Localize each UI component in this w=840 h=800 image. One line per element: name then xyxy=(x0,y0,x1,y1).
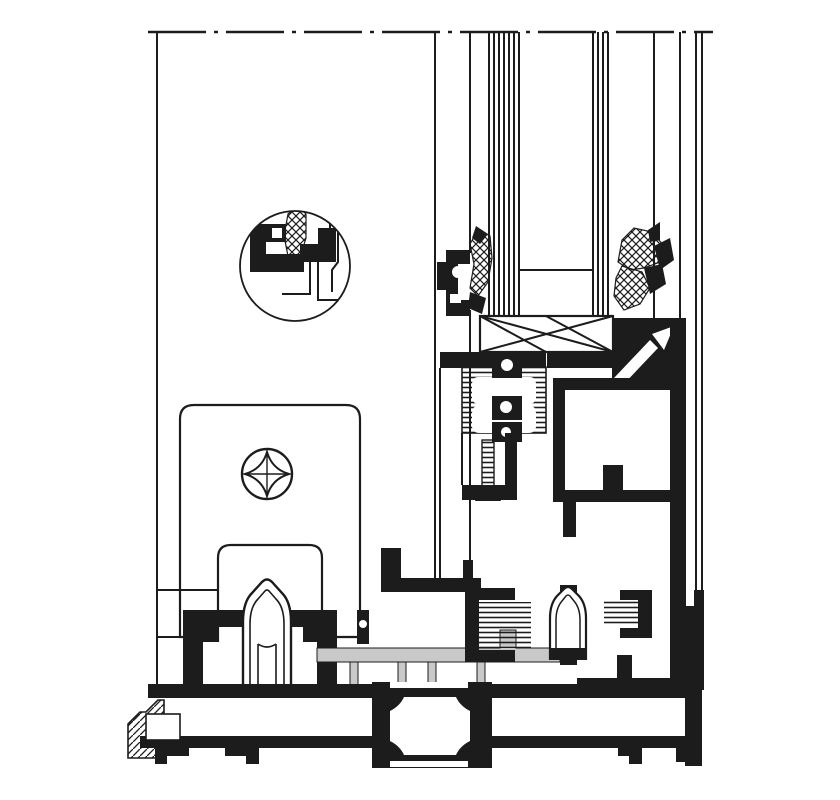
detail-callout-circle xyxy=(240,206,350,321)
drawing-canvas xyxy=(0,0,840,800)
interlock-hook xyxy=(381,548,481,592)
connector-block xyxy=(372,682,492,768)
cross-section-drawing xyxy=(0,0,840,800)
glazing-gasket-right xyxy=(614,222,674,310)
bulb-gasket-center xyxy=(550,585,586,665)
octagonal-bore xyxy=(390,697,470,755)
thermal-break xyxy=(440,352,546,442)
brush-seal-right xyxy=(604,590,652,683)
glazing-unit xyxy=(480,316,613,352)
sash-glazing-channel xyxy=(437,226,492,316)
phillips-screw xyxy=(242,449,292,499)
bulb-gasket-left xyxy=(243,580,291,691)
